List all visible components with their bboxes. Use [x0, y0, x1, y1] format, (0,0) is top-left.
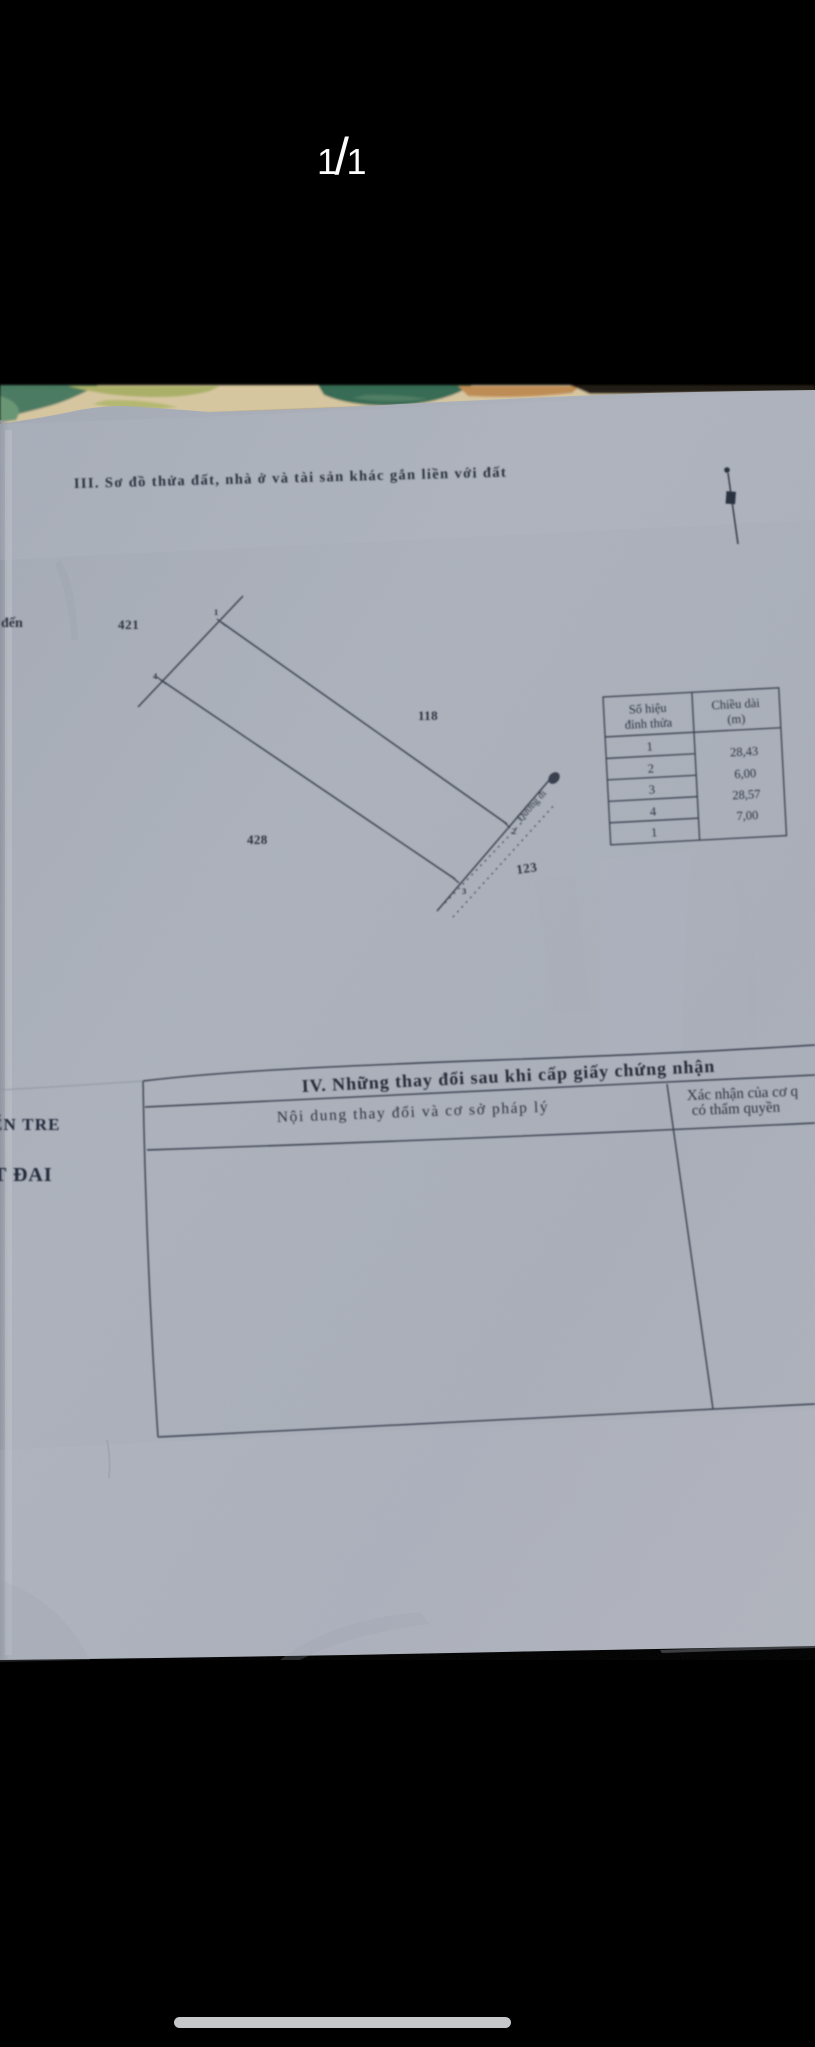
svg-text:123: 123	[515, 859, 538, 877]
svg-text:1: 1	[214, 607, 218, 617]
svg-text:ẾN TRE: ẾN TRE	[0, 1115, 61, 1134]
svg-text:118: 118	[418, 708, 438, 723]
svg-text:Số hiệu: Số hiệu	[628, 701, 667, 717]
svg-text:đỉnh thửa: đỉnh thửa	[624, 715, 673, 731]
svg-text:6,00: 6,00	[734, 766, 757, 781]
svg-text:3: 3	[462, 886, 466, 896]
svg-text:(m): (m)	[727, 712, 746, 727]
svg-text:428: 428	[247, 832, 268, 847]
svg-text:7,00: 7,00	[736, 808, 759, 823]
svg-text:T ĐAI: T ĐAI	[0, 1164, 53, 1186]
svg-text:28,43: 28,43	[730, 744, 759, 759]
svg-text:Chiều dài: Chiều dài	[711, 696, 760, 713]
svg-text:đến: đến	[1, 616, 23, 631]
svg-text:2: 2	[512, 826, 516, 836]
svg-text:3: 3	[648, 782, 655, 796]
svg-text:2: 2	[647, 761, 654, 775]
svg-text:có thẩm quyền: có thẩm quyền	[692, 1100, 781, 1119]
svg-text:1: 1	[651, 825, 658, 839]
svg-text:1: 1	[646, 739, 653, 753]
svg-text:28,57: 28,57	[732, 787, 761, 802]
svg-text:421: 421	[118, 617, 139, 632]
